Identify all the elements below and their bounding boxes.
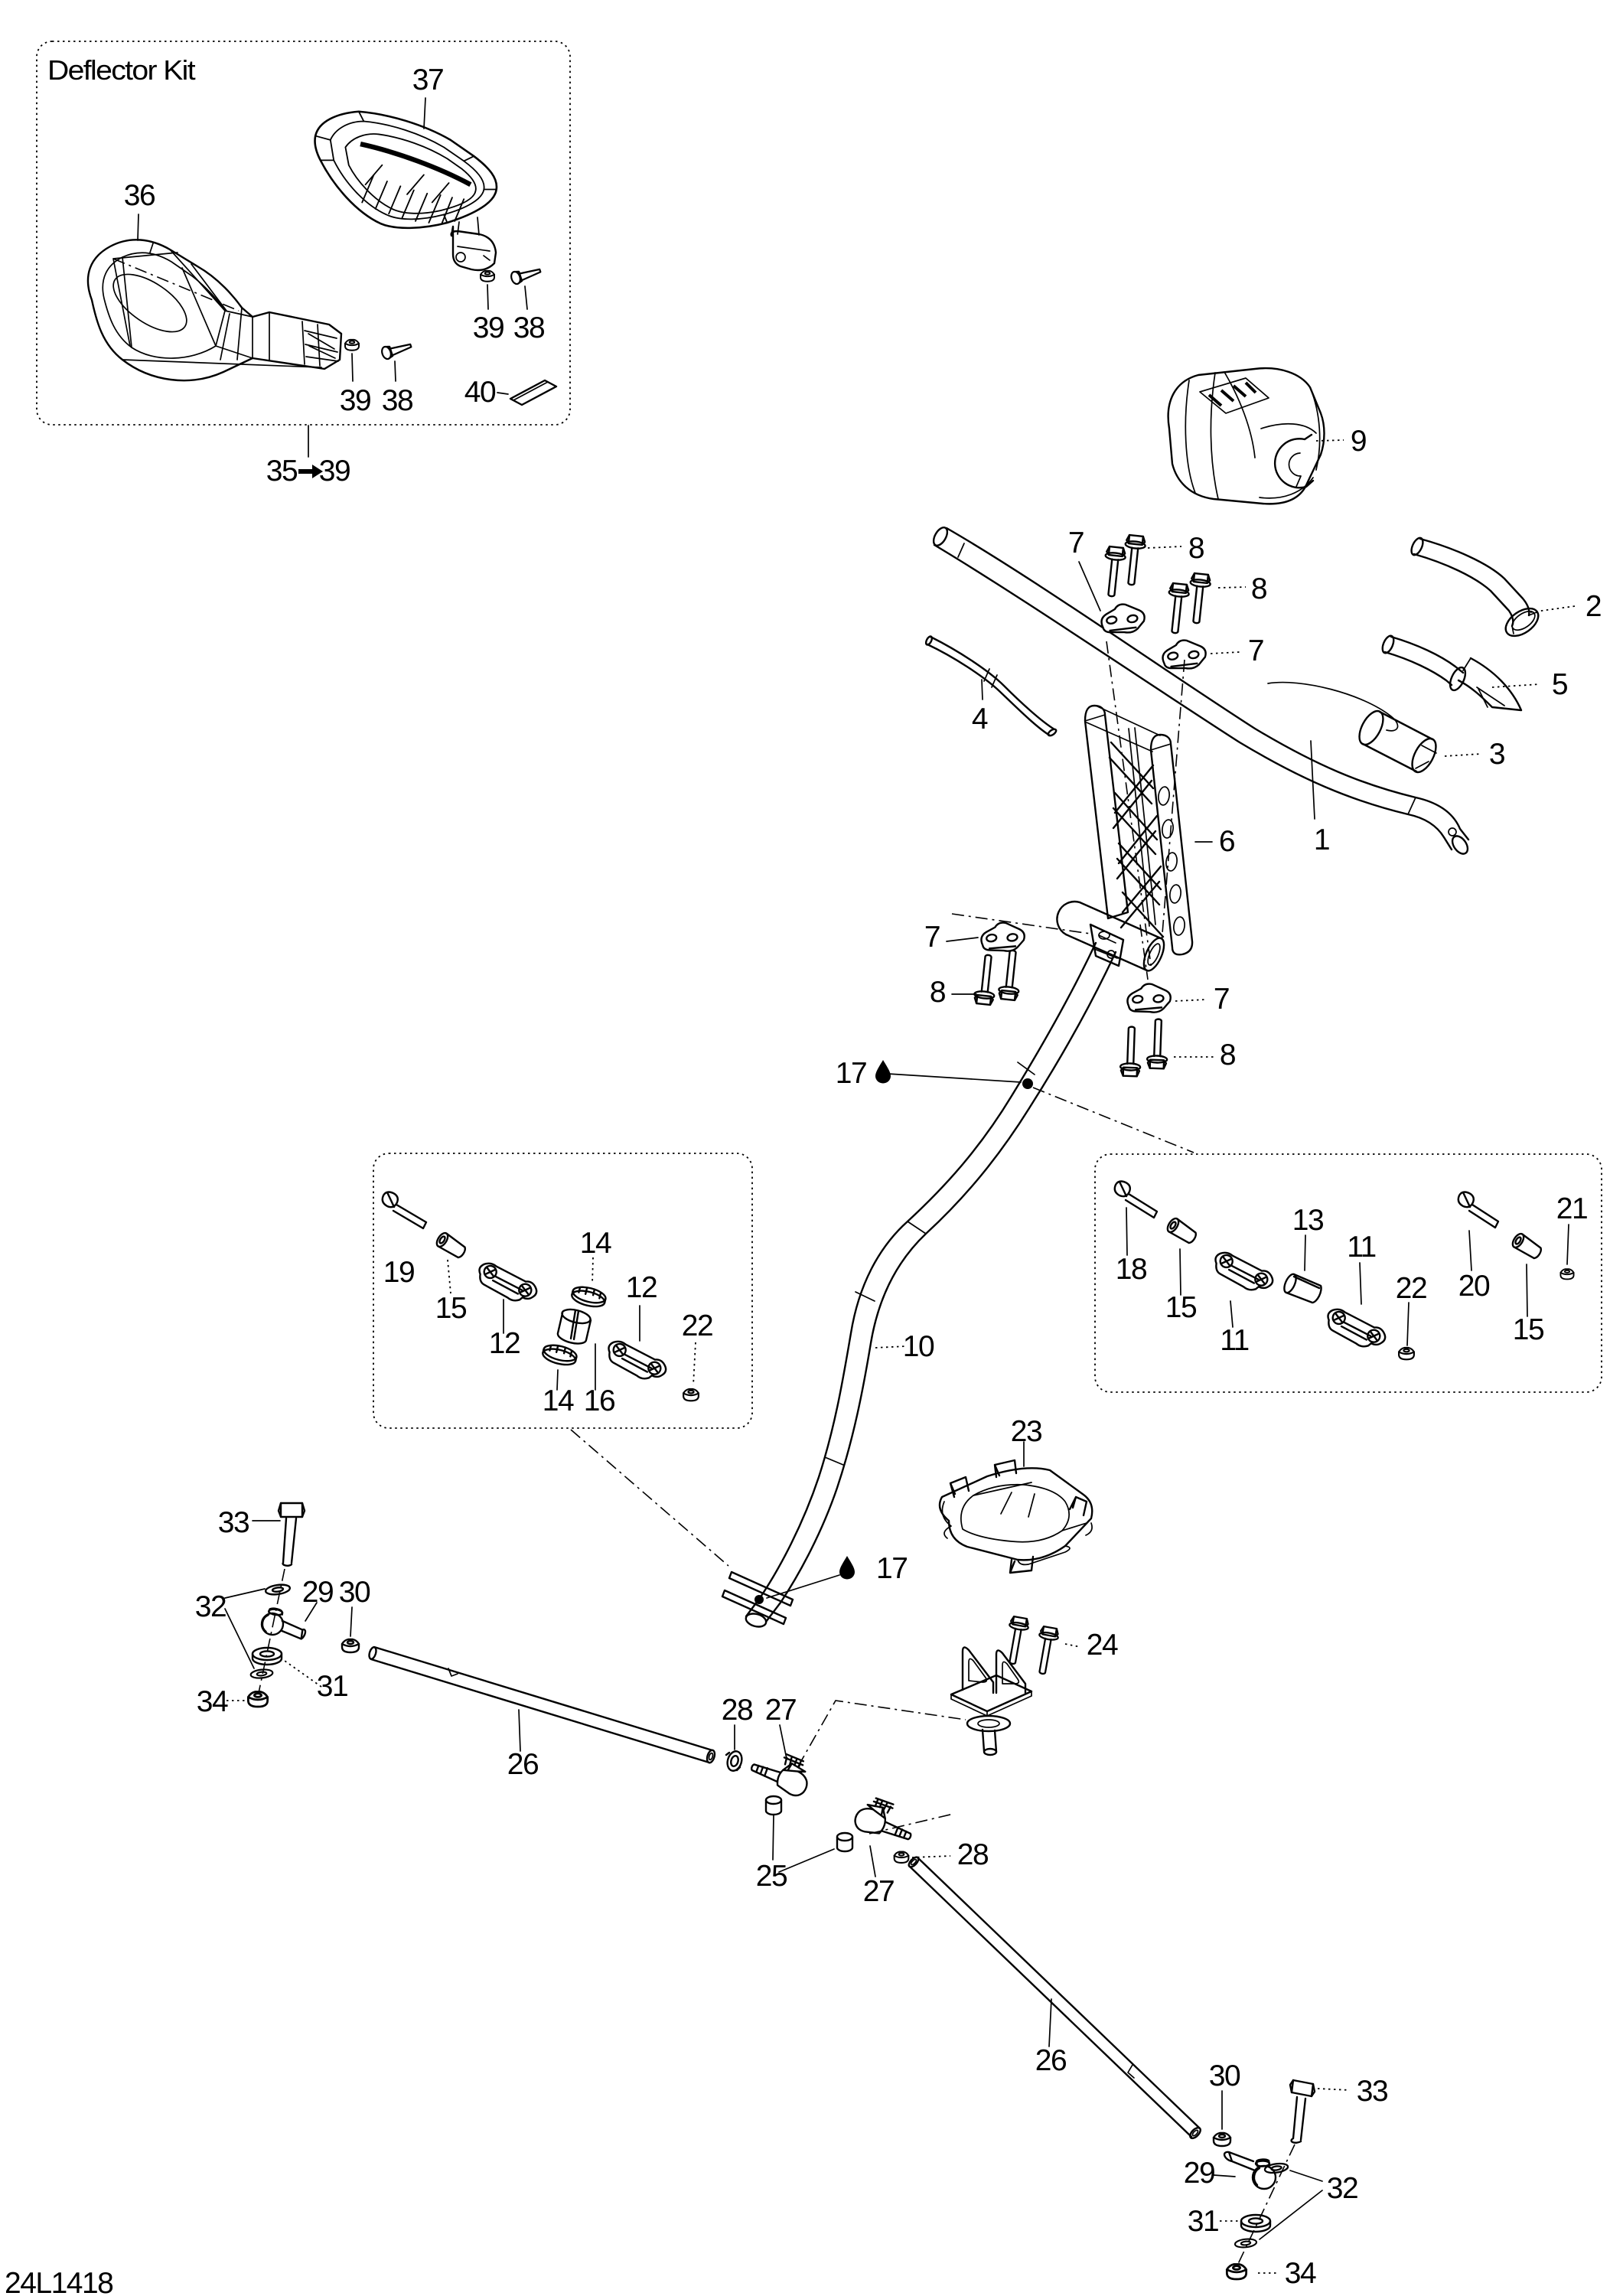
svg-text:18: 18 xyxy=(1116,1253,1146,1286)
svg-text:7: 7 xyxy=(1214,983,1229,1016)
svg-text:31: 31 xyxy=(317,1670,347,1703)
svg-text:32: 32 xyxy=(1327,2172,1357,2205)
svg-text:38: 38 xyxy=(513,311,544,344)
svg-text:27: 27 xyxy=(863,1875,894,1908)
svg-text:1: 1 xyxy=(1314,823,1329,856)
svg-text:34: 34 xyxy=(197,1685,228,1718)
svg-text:22: 22 xyxy=(682,1309,712,1342)
svg-text:26: 26 xyxy=(507,1748,538,1781)
svg-text:17: 17 xyxy=(836,1057,866,1090)
svg-text:6: 6 xyxy=(1219,825,1234,858)
svg-text:28: 28 xyxy=(722,1694,752,1727)
svg-text:8: 8 xyxy=(1251,572,1266,605)
svg-text:15: 15 xyxy=(435,1292,467,1325)
svg-text:39: 39 xyxy=(473,311,504,344)
svg-text:8: 8 xyxy=(930,976,945,1009)
svg-text:15: 15 xyxy=(1513,1313,1544,1346)
svg-text:8: 8 xyxy=(1220,1039,1235,1071)
svg-text:13: 13 xyxy=(1292,1204,1323,1237)
svg-text:7: 7 xyxy=(1068,527,1084,559)
svg-text:14: 14 xyxy=(580,1227,611,1260)
svg-text:12: 12 xyxy=(626,1271,657,1304)
svg-text:17: 17 xyxy=(876,1552,907,1585)
svg-text:27: 27 xyxy=(765,1694,796,1727)
svg-text:26: 26 xyxy=(1035,2044,1066,2077)
svg-text:25: 25 xyxy=(756,1860,787,1893)
svg-text:15: 15 xyxy=(1165,1291,1197,1324)
svg-text:30: 30 xyxy=(1209,2060,1240,2092)
svg-text:29: 29 xyxy=(302,1576,333,1609)
svg-text:8: 8 xyxy=(1188,532,1204,565)
svg-text:16: 16 xyxy=(584,1384,614,1417)
svg-text:14: 14 xyxy=(543,1384,574,1417)
svg-text:34: 34 xyxy=(1285,2257,1316,2290)
svg-text:22: 22 xyxy=(1396,1272,1426,1305)
svg-text:20: 20 xyxy=(1458,1270,1490,1303)
svg-text:7: 7 xyxy=(924,921,940,954)
svg-text:39: 39 xyxy=(340,384,370,417)
svg-text:4: 4 xyxy=(972,703,988,735)
svg-text:33: 33 xyxy=(218,1506,249,1539)
svg-text:3: 3 xyxy=(1489,738,1504,771)
svg-text:39: 39 xyxy=(319,455,350,488)
svg-text:30: 30 xyxy=(339,1576,370,1609)
svg-text:40: 40 xyxy=(464,376,496,409)
svg-text:24L1418: 24L1418 xyxy=(5,2267,112,2296)
svg-text:11: 11 xyxy=(1347,1231,1376,1264)
svg-text:24: 24 xyxy=(1087,1629,1118,1662)
svg-text:28: 28 xyxy=(957,1838,988,1871)
svg-text:11: 11 xyxy=(1220,1324,1249,1357)
svg-text:2: 2 xyxy=(1586,590,1601,623)
svg-text:5: 5 xyxy=(1552,668,1568,701)
svg-text:21: 21 xyxy=(1556,1192,1587,1225)
svg-text:9: 9 xyxy=(1351,425,1366,458)
svg-text:31: 31 xyxy=(1188,2205,1218,2238)
svg-text:10: 10 xyxy=(903,1330,934,1363)
svg-text:Deflector Kit: Deflector Kit xyxy=(47,54,196,86)
svg-text:7: 7 xyxy=(1248,634,1263,667)
svg-text:36: 36 xyxy=(124,179,155,212)
svg-text:37: 37 xyxy=(412,64,443,96)
svg-text:23: 23 xyxy=(1011,1415,1041,1448)
svg-text:38: 38 xyxy=(382,384,412,417)
svg-text:19: 19 xyxy=(383,1256,414,1289)
svg-text:33: 33 xyxy=(1357,2075,1387,2108)
svg-text:12: 12 xyxy=(489,1327,520,1360)
svg-text:29: 29 xyxy=(1184,2157,1214,2190)
svg-text:32: 32 xyxy=(195,1590,226,1623)
svg-text:35: 35 xyxy=(266,455,298,488)
